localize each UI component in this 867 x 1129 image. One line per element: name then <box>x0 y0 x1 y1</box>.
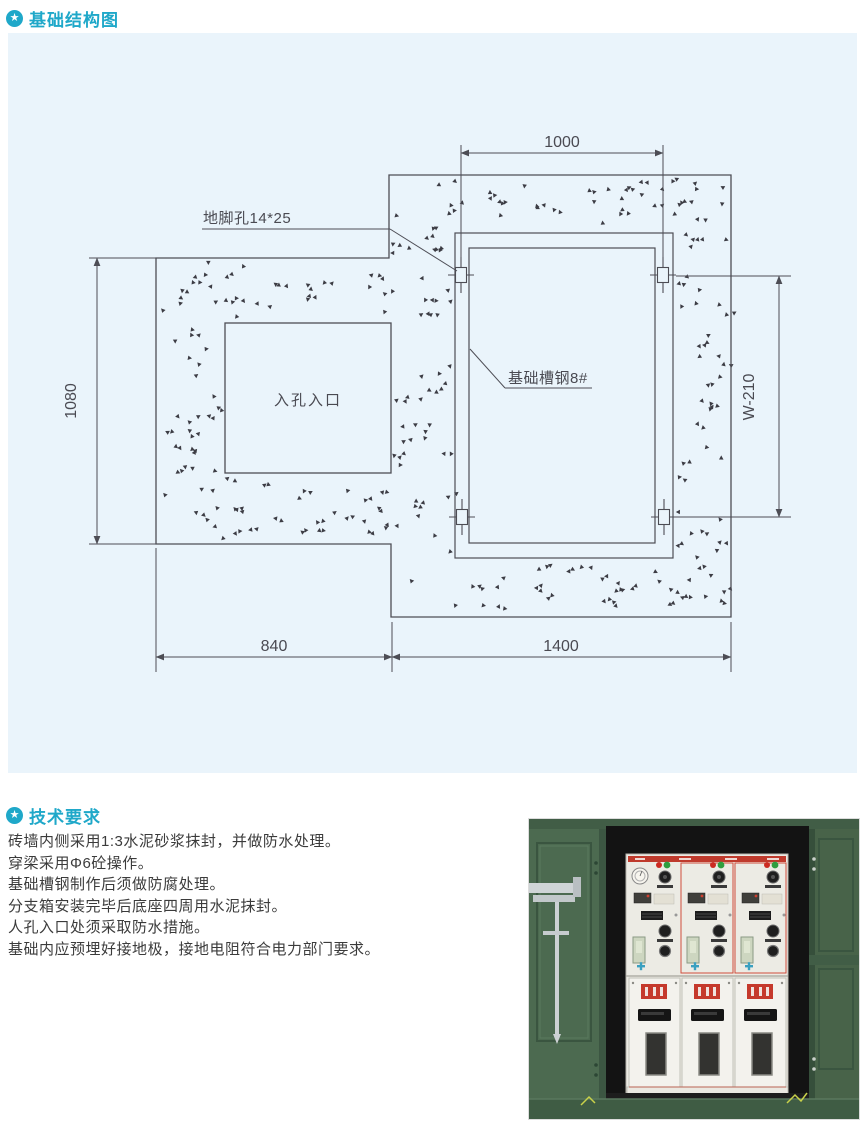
channel-steel-label: 基础槽钢8# <box>508 370 588 387</box>
dim-top <box>461 145 663 267</box>
equipment-photo-art <box>529 819 859 1119</box>
foundation-diagram-panel: 入孔入口 1000 1080 <box>8 33 857 773</box>
requirement-line: 基础槽钢制作后须做防腐处理。 <box>8 874 478 896</box>
right-door <box>809 819 859 1119</box>
dim-top-value: 1000 <box>544 134 580 151</box>
dim-right-value: W-210 <box>741 373 758 420</box>
anchor-hole-label: 地脚孔14*25 <box>203 210 291 227</box>
anchor-bolts <box>448 257 677 535</box>
foundation-diagram: 入孔入口 1000 1080 <box>8 33 857 773</box>
requirement-line: 分支箱安装完毕后底座四周用水泥抹封。 <box>8 896 478 918</box>
dim-left <box>89 258 173 544</box>
manhole-label: 入孔入口 <box>274 392 342 409</box>
star-circle-icon: ★ <box>6 10 23 27</box>
cabinet-red-strip <box>628 856 786 862</box>
dim-bottom <box>156 548 731 672</box>
technical-section-title: 技术要求 <box>29 803 101 828</box>
anchor-hole-leader <box>202 229 457 271</box>
requirements-list: 砖墙内侧采用1:3水泥砂浆抹封，并做防水处理。穿梁采用Φ6砼操作。基础槽钢制作后… <box>8 831 478 960</box>
channel-steel-inner-rect <box>469 248 655 543</box>
technical-section-header: ★ 技术要求 <box>6 803 101 828</box>
star-circle-icon: ★ <box>6 807 23 824</box>
requirement-line: 基础内应预埋好接地极，接地电阻符合电力部门要求。 <box>8 939 478 961</box>
requirement-line: 穿梁采用Φ6砼操作。 <box>8 853 478 875</box>
dim-bottom-right-value: 1400 <box>543 638 579 655</box>
left-door <box>529 819 606 1119</box>
requirement-line: 人孔入口处须采取防水措施。 <box>8 917 478 939</box>
dim-bottom-left-value: 840 <box>261 638 288 655</box>
dim-left-value: 1080 <box>63 383 80 419</box>
switchgear-cabinet <box>624 854 792 1104</box>
channel-steel-outer-rect <box>455 233 673 558</box>
foundation-section-title: 基础结构图 <box>29 6 119 31</box>
requirement-line: 砖墙内侧采用1:3水泥砂浆抹封，并做防水处理。 <box>8 831 478 853</box>
foundation-section-header: ★ 基础结构图 <box>6 6 119 31</box>
equipment-photo <box>528 818 860 1120</box>
anchor-bolt <box>449 499 475 535</box>
